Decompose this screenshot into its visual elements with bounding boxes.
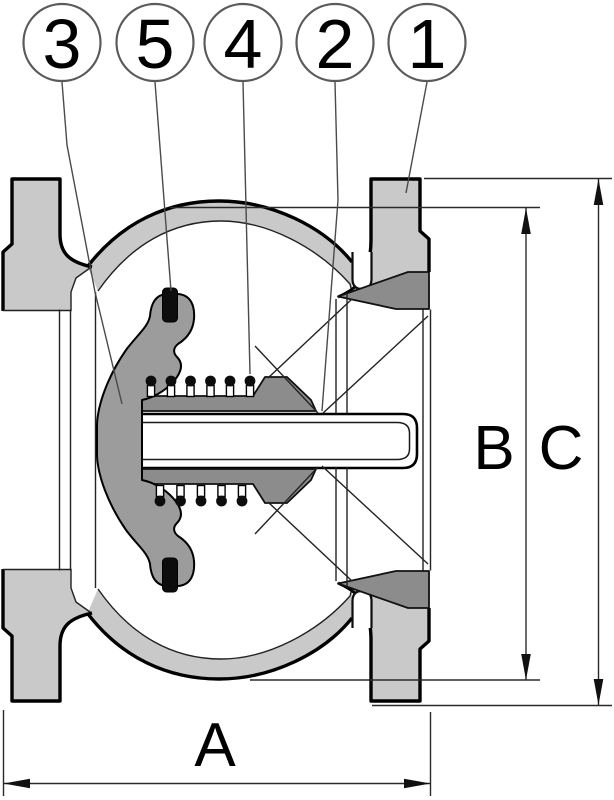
drawing-page: A B C 3 5 4 2 1 xyxy=(0,0,614,800)
callout-number-1: 1 xyxy=(408,5,447,83)
valve-cross-section-drawing: A B C 3 5 4 2 1 xyxy=(0,0,614,800)
dim-B-label: B xyxy=(473,414,514,483)
upper-pivot-pin xyxy=(163,288,178,322)
callout-number-3: 3 xyxy=(43,5,82,83)
callout-number-2: 2 xyxy=(316,5,355,83)
dim-A-label: A xyxy=(194,711,236,780)
callout-number-5: 5 xyxy=(136,5,175,83)
lower-pivot-pin xyxy=(163,558,178,592)
valve-stem xyxy=(138,414,417,468)
callout-number-4: 4 xyxy=(224,5,263,83)
dim-C-label: C xyxy=(539,414,584,483)
body-flange-gap-notch xyxy=(353,252,372,289)
